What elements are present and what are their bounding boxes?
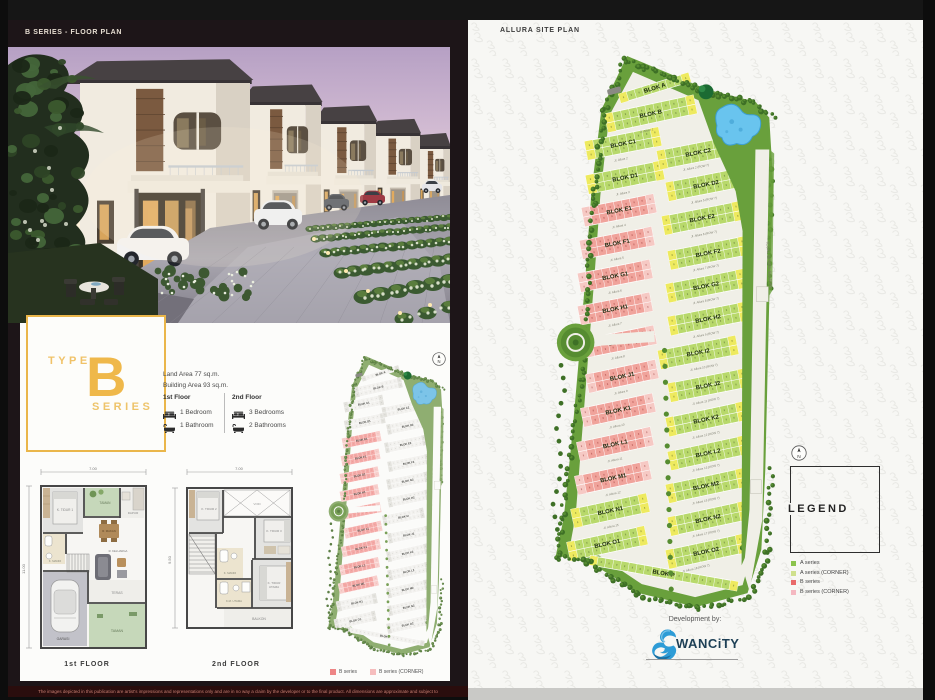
svg-text:N: N [797, 454, 801, 460]
svg-text:K. MANDI: K. MANDI [224, 571, 237, 575]
svg-text:BALKON: BALKON [252, 617, 266, 621]
svg-text:TAMAN: TAMAN [100, 501, 112, 505]
svg-text:UTAMA: UTAMA [269, 585, 279, 589]
svg-text:K. TIDUR 1: K. TIDUR 1 [57, 508, 73, 512]
svg-text:K. MANDI: K. MANDI [49, 559, 62, 563]
svg-text:TAMAN: TAMAN [111, 629, 124, 633]
svg-text:N: N [437, 359, 440, 364]
svg-text:R. MAKAN: R. MAKAN [102, 529, 116, 533]
svg-text:R. KELUARGA: R. KELUARGA [109, 549, 128, 553]
svg-text:K. TIDUR 3: K. TIDUR 3 [266, 529, 282, 533]
svg-text:K.M. UTAMA: K.M. UTAMA [226, 599, 242, 603]
svg-text:DAPUR: DAPUR [128, 511, 139, 515]
svg-text:9.50: 9.50 [167, 555, 172, 564]
svg-text:TERAS: TERAS [111, 591, 123, 595]
svg-text:7.00: 7.00 [235, 466, 244, 471]
svg-text:7.00: 7.00 [89, 466, 98, 471]
svg-text:VOID: VOID [253, 502, 261, 506]
svg-text:K. TIDUR 2: K. TIDUR 2 [201, 507, 217, 511]
svg-text:GARASI: GARASI [57, 637, 70, 641]
svg-text:11.00: 11.00 [21, 563, 26, 573]
